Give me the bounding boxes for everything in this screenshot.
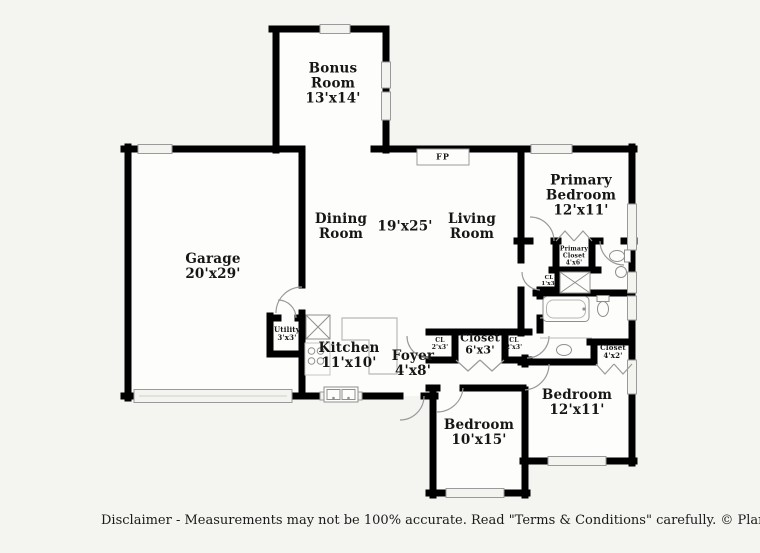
fireplace [417,149,469,165]
kitchen-stove [305,343,330,375]
floorplan-image: Bonus Room 13'x14' Garage 20'x29' Dining… [0,0,760,553]
sink-primary-bath [616,267,627,278]
bathtub [543,297,589,322]
toilet-hall-bath [597,296,609,317]
garage-door [134,390,292,403]
kitchen-appliance [306,315,330,339]
disclaimer-text: Disclaimer - Measurements may not be 100… [101,513,760,528]
shower [560,272,590,293]
kitchen-sink [324,387,358,402]
floorplan-drawing [0,0,760,553]
toilet-primary-bath [610,250,631,262]
